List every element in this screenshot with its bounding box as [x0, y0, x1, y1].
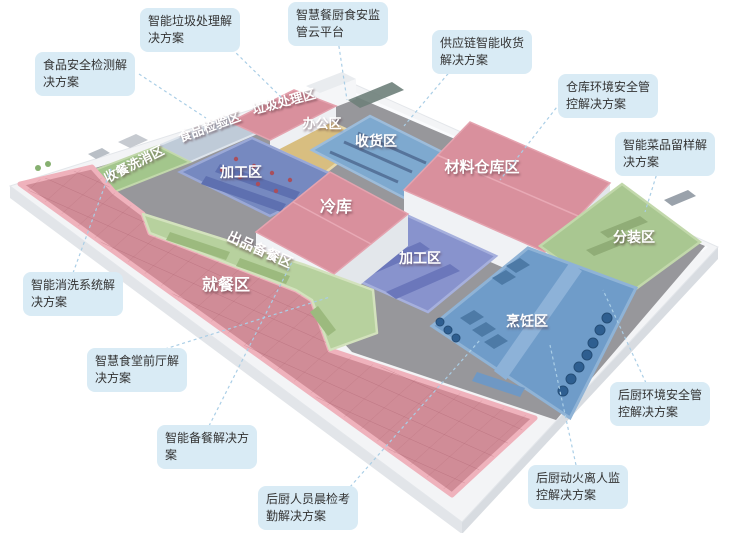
- plant-icon: [45, 161, 51, 167]
- smart-canteen-diagram: 收餐洗消区 食品检验区 垃圾处理区 办公区 收货区 材料仓库区 分装区 加工区 …: [0, 0, 745, 533]
- callout-text: 智能垃圾处理解决方案: [148, 14, 232, 45]
- callout-text: 后厨人员晨检考勤解决方案: [266, 492, 350, 523]
- callout-smart-prep: 智能备餐解决方案: [157, 425, 257, 469]
- callout-dish-sampling: 智能菜品留样解决方案: [615, 132, 715, 176]
- callout-text: 后厨环境安全管控解决方案: [618, 388, 702, 419]
- callout-smart-waste: 智能垃圾处理解决方案: [140, 8, 240, 52]
- zone-label-processing-north: 加工区: [219, 164, 262, 180]
- zone-label-material-warehouse: 材料仓库区: [444, 158, 519, 176]
- callout-kitchen-env: 后厨环境安全管控解决方案: [610, 382, 710, 426]
- leader-smart-waste: [232, 49, 282, 98]
- callout-staff-check: 后厨人员晨检考勤解决方案: [258, 486, 358, 530]
- zone-label-receiving: 收货区: [355, 133, 397, 149]
- callout-text: 智能菜品留样解决方案: [623, 138, 707, 169]
- callout-text: 智能备餐解决方案: [165, 431, 249, 462]
- callout-warehouse-env: 仓库环境安全管控解决方案: [558, 74, 658, 118]
- callout-text: 后厨动火离人监控解决方案: [536, 471, 620, 502]
- callout-text: 仓库环境安全管控解决方案: [566, 80, 650, 111]
- callout-text: 智慧餐厨食安监管云平台: [296, 8, 380, 39]
- zone-label-office: 办公区: [302, 116, 341, 131]
- callout-text: 供应链智能收货解决方案: [440, 36, 524, 67]
- callout-text: 智慧食堂前厅解决方案: [95, 354, 179, 385]
- callout-front-hall: 智慧食堂前厅解决方案: [87, 348, 187, 392]
- callout-supply-chain: 供应链智能收货解决方案: [432, 30, 532, 74]
- callout-fire-monitor: 后厨动火离人监控解决方案: [528, 465, 628, 509]
- callout-smart-washing: 智能消洗系统解决方案: [23, 272, 123, 316]
- zone-label-cold-storage: 冷库: [320, 197, 352, 216]
- zone-label-portioning: 分装区: [613, 229, 655, 245]
- zone-label-processing-center: 加工区: [398, 250, 441, 266]
- plant-icon: [35, 165, 41, 171]
- leader-food-safety-test: [139, 74, 206, 118]
- zone-label-dining: 就餐区: [202, 275, 250, 294]
- callout-text: 智能消洗系统解决方案: [31, 278, 115, 309]
- callout-food-safety-test: 食品安全检测解决方案: [35, 52, 135, 96]
- zone-label-cooking: 烹饪区: [506, 313, 548, 329]
- callout-cloud-platform: 智慧餐厨食安监管云平台: [288, 2, 388, 46]
- callout-text: 食品安全检测解决方案: [43, 58, 127, 89]
